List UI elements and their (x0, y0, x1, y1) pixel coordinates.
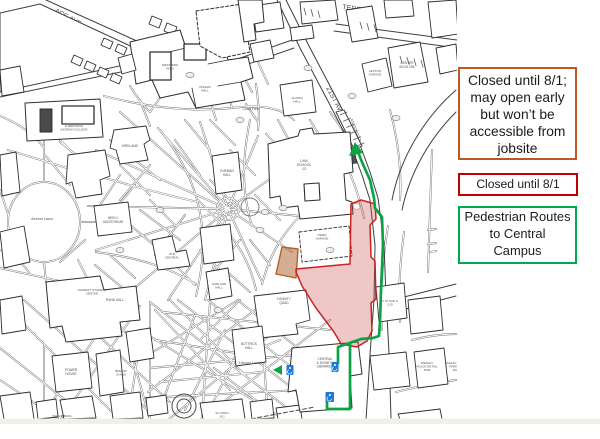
svg-text:SCI: SCI (219, 415, 224, 419)
svg-text:KIRKLAND: KIRKLAND (122, 144, 139, 148)
svg-text:JOHNS: JOHNS (116, 373, 126, 377)
svg-text:13: 13 (302, 167, 306, 171)
svg-text:Curry Field: Curry Field (242, 107, 259, 111)
svg-text:HALL: HALL (245, 346, 253, 350)
svg-text:RAND HALL: RAND HALL (106, 298, 124, 302)
svg-text:BLDG 206: BLDG 206 (400, 65, 415, 69)
svg-text:Library Lawn: Library Lawn (239, 361, 261, 365)
svg-text:WHIA B BLDG: WHIA B BLDG (52, 414, 72, 418)
svg-text:2006: 2006 (424, 368, 431, 372)
svg-text:HALL: HALL (293, 100, 301, 104)
svg-text:LIBRARIES: LIBRARIES (317, 365, 334, 369)
svg-text:CENTRAL: CENTRAL (165, 256, 179, 260)
svg-text:CENTER: CENTER (86, 292, 99, 296)
svg-text:AUDITORIUM: AUDITORIUM (103, 220, 123, 224)
svg-text:GARAGE: GARAGE (316, 237, 329, 241)
svg-text:HALL: HALL (201, 89, 209, 93)
svg-text:HALL: HALL (223, 173, 231, 177)
svg-text:219: 219 (387, 303, 392, 307)
svg-text:GARAGE: GARAGE (369, 73, 382, 77)
svg-text:ROW: ROW (166, 67, 174, 71)
svg-text:INGRAM COLLEGE: INGRAM COLLEGE (60, 128, 87, 132)
svg-text:Alumni Lawn: Alumni Lawn (31, 217, 53, 221)
svg-text:2008: 2008 (453, 368, 460, 372)
svg-text:HALL: HALL (215, 286, 223, 290)
svg-text:QUAD: QUAD (279, 301, 289, 305)
svg-text:HOUSE: HOUSE (65, 372, 76, 376)
